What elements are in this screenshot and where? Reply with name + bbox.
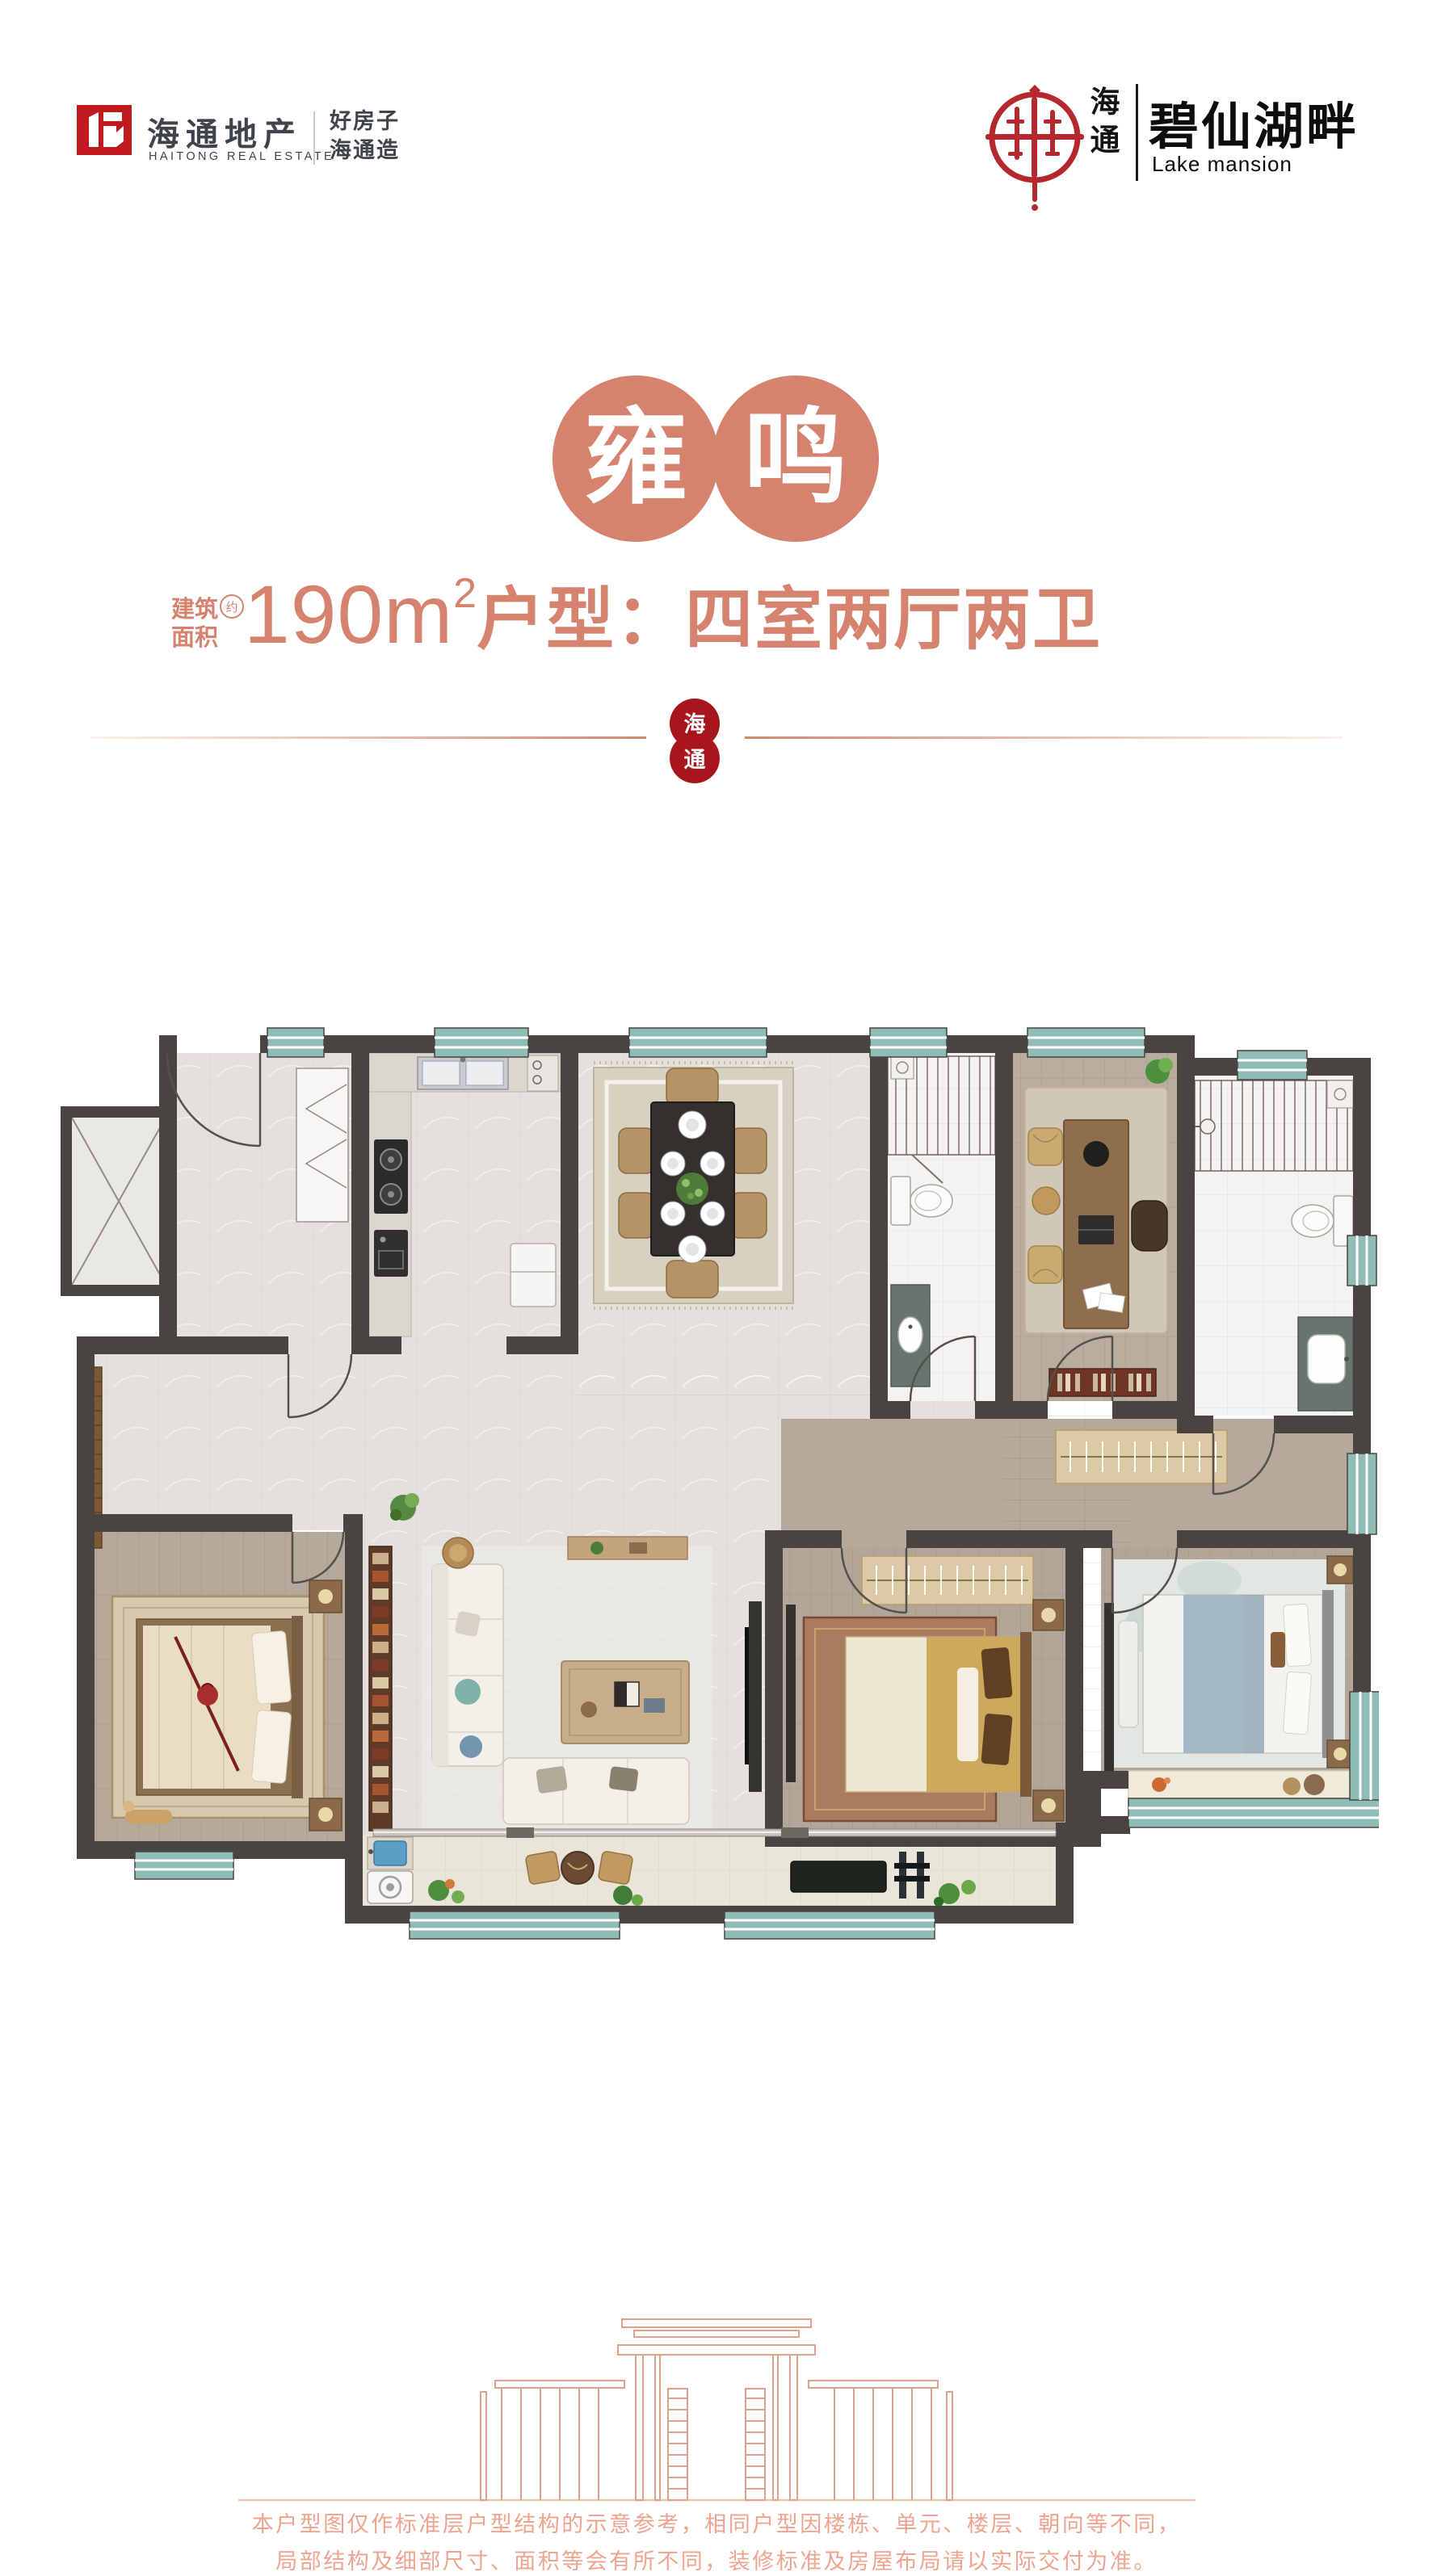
disclaimer-line-2: 局部结构及细部尺寸、面积等会有所不同，装修标准及房屋布局请以实际交付为准。 (0, 2544, 1433, 2575)
poster-page: 海通地产 HAITONG REAL ESTATE 好房子 海通造 海 通 碧仙湖… (0, 0, 1433, 2576)
title-circle-2: 鸣 (712, 375, 879, 542)
bookshelf (369, 1546, 392, 1831)
brand-divider (313, 111, 315, 165)
floor-plan (54, 981, 1379, 1958)
project-logo-divider (1136, 84, 1138, 181)
title-char-2: 鸣 (744, 407, 847, 510)
disclaimer-line-1: 本户型图仅作标准层户型结构的示意参考，相同户型因楼栋、单元、楼层、朝向等不同， (0, 2507, 1433, 2538)
area-superscript: 2 (453, 570, 477, 617)
area-label-line2: 面积 (171, 624, 218, 652)
area-unit: m (384, 568, 453, 661)
title-circle-1: 雍 (553, 375, 719, 542)
entry-closet (296, 1068, 348, 1222)
seal-emblem-icon (984, 78, 1086, 213)
tagline-line2: 海通造 (330, 136, 400, 165)
divider-line-left (90, 736, 646, 739)
living-room-furniture (422, 1537, 762, 1831)
area-value: 190 (244, 568, 384, 661)
area-label-line1: 建筑 (171, 596, 218, 624)
layout-text: 户型：四室两厅两卫 (477, 581, 1102, 657)
corridor-wardrobe (1056, 1430, 1227, 1483)
seal-char-2: 通 (684, 748, 706, 772)
master-bedroom-furniture (1104, 1556, 1353, 1798)
gate-illustration-icon (238, 2314, 1196, 2508)
brand-name-cn: 海通地产 (147, 108, 302, 155)
brand-char-1: 海 (1089, 84, 1121, 122)
title-char-1: 雍 (584, 407, 687, 510)
brand-char-2: 通 (1089, 122, 1121, 160)
area-label: 建筑 面积 (171, 596, 218, 652)
haitong-logo-icon (77, 105, 132, 155)
haitong-seal-icon: 海 通 (667, 694, 722, 790)
brand-tagline: 好房子 海通造 (330, 107, 400, 166)
brand-name-en: HAITONG REAL ESTATE (149, 150, 334, 163)
area-spec-line: 190m2户型：四室两厅两卫 (244, 565, 1102, 663)
approx-badge: 约 (220, 594, 244, 619)
bedroom-left-furniture (112, 1580, 342, 1831)
project-name-en: Lake mansion (1152, 152, 1292, 177)
balcony-sliding-door (373, 1827, 1056, 1838)
project-name-cn: 碧仙湖畔 (1149, 86, 1359, 158)
divider-line-right (745, 736, 1343, 739)
tagline-line1: 好房子 (330, 107, 400, 136)
seal-char-1: 海 (684, 712, 706, 736)
dining-set (594, 1063, 793, 1308)
project-brand-vertical: 海 通 (1089, 84, 1121, 159)
